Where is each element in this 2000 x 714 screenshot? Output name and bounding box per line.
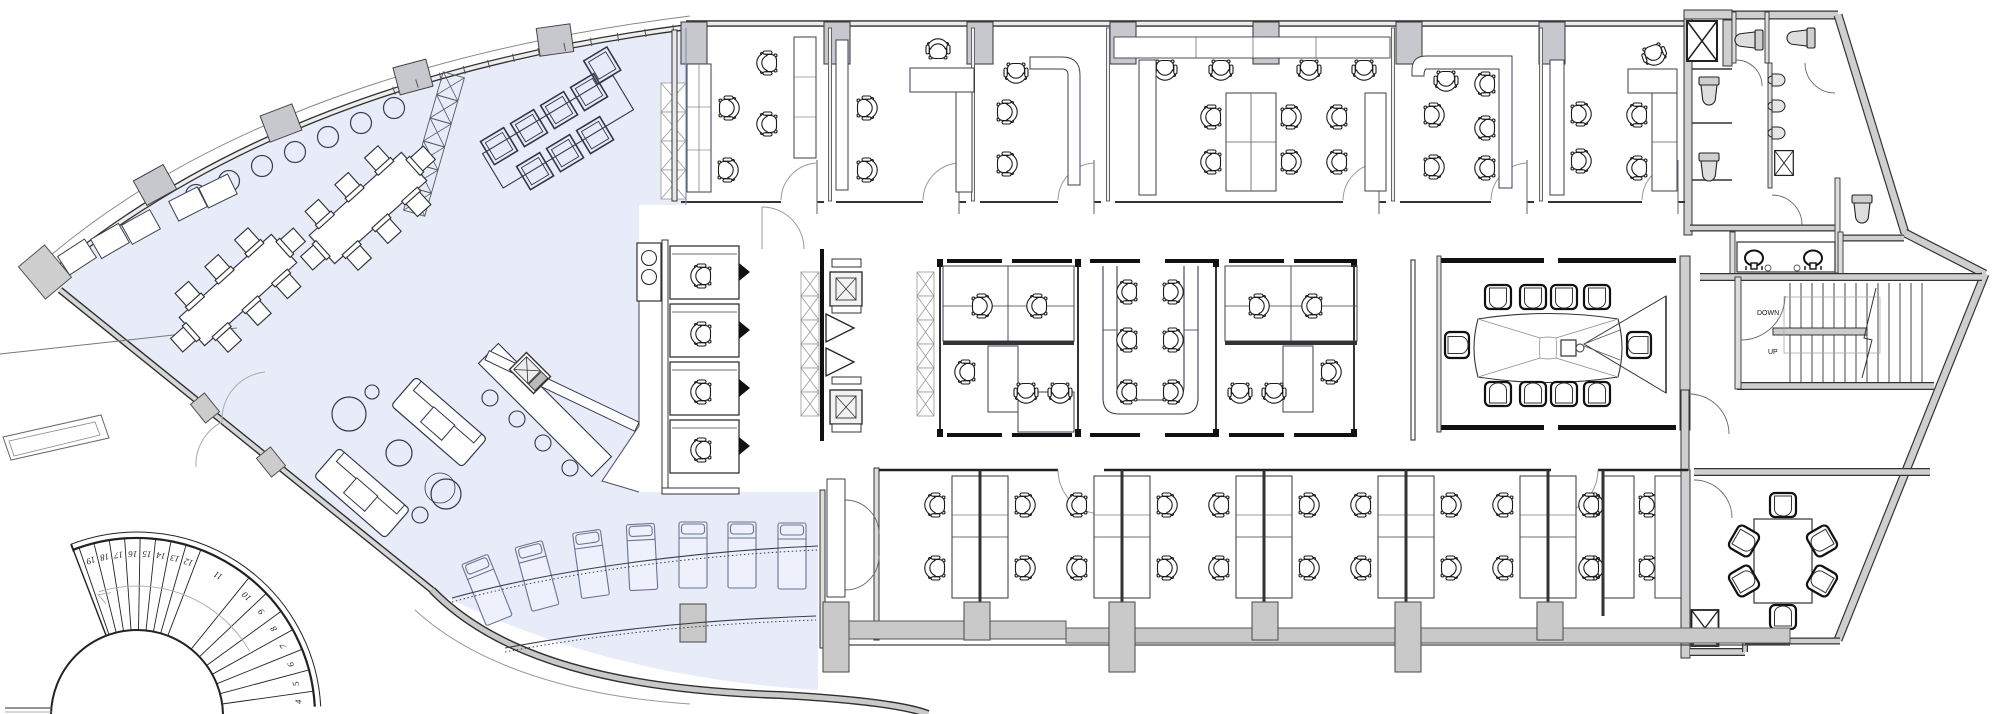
svg-text:DOWN: DOWN <box>1757 310 1779 317</box>
svg-text:17: 17 <box>113 550 124 561</box>
svg-text:16: 16 <box>128 549 138 559</box>
svg-text:UP: UP <box>1768 349 1778 356</box>
svg-text:15: 15 <box>142 549 152 560</box>
